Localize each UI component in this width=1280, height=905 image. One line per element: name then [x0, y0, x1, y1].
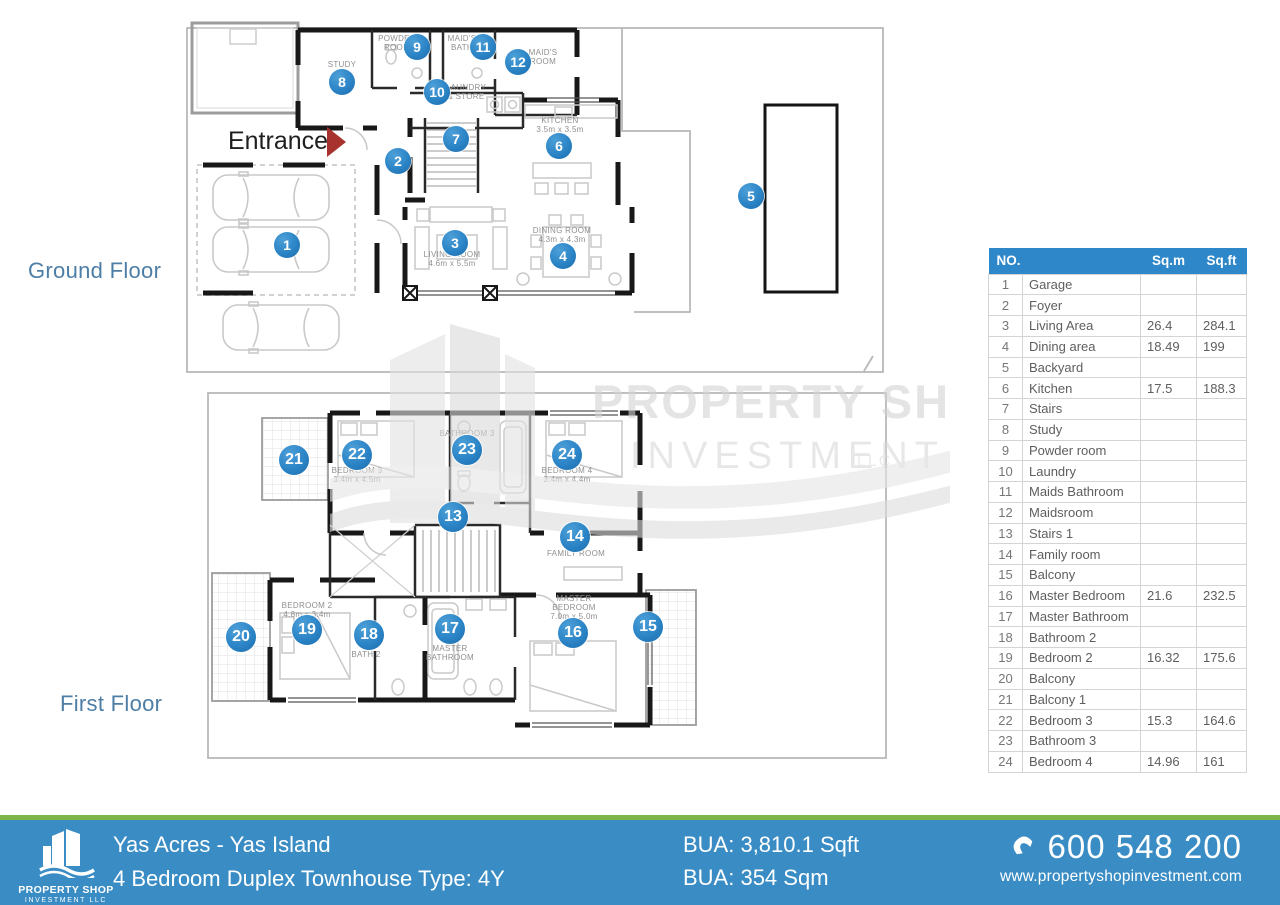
table-row: 9Powder room: [989, 440, 1247, 461]
table-row: 24Bedroom 414.96161: [989, 751, 1247, 772]
header-sqft: Sq.ft: [1197, 248, 1247, 274]
phone-number: 600 548 200: [1047, 828, 1242, 866]
room-marker-2: 2: [385, 148, 411, 174]
room-marker-5: 5: [738, 183, 764, 209]
room-marker-7: 7: [443, 126, 469, 152]
bua-sqm: BUA: 354 Sqm: [683, 865, 859, 891]
room-marker-11: 11: [470, 34, 496, 60]
project-name: Yas Acres - Yas Island: [113, 832, 505, 858]
table-row: 20Balcony: [989, 668, 1247, 689]
room-marker-14: 14: [560, 522, 590, 552]
area-table-body: 1Garage2Foyer3Living Area26.4284.14Dinin…: [989, 274, 1247, 772]
table-row: 13Stairs 1: [989, 523, 1247, 544]
room-marker-1: 1: [274, 232, 300, 258]
company-logo-icon: [36, 826, 96, 878]
room-marker-6: 6: [546, 133, 572, 159]
room-marker-12: 12: [505, 49, 531, 75]
table-row: 22Bedroom 315.3164.6: [989, 710, 1247, 731]
table-row: 15Balcony: [989, 565, 1247, 586]
table-row: 17Master Bathroom: [989, 606, 1247, 627]
table-row: 18Bathroom 2: [989, 627, 1247, 648]
flyer-canvas: Ground Floor First Floor: [0, 0, 1280, 905]
area-table: NO. Sq.m Sq.ft 1Garage2Foyer3Living Area…: [988, 248, 1246, 773]
table-row: 16Master Bedroom21.6232.5: [989, 585, 1247, 606]
header-sqm: Sq.m: [1141, 248, 1197, 274]
room-marker-18: 18: [354, 620, 384, 650]
room-marker-24: 24: [552, 440, 582, 470]
table-header-row: NO. Sq.m Sq.ft: [989, 248, 1247, 274]
contact-info: 600 548 200 www.propertyshopinvestment.c…: [1000, 828, 1242, 886]
room-marker-4: 4: [550, 243, 576, 269]
table-row: 4Dining area18.49199: [989, 336, 1247, 357]
phone-icon: [1011, 834, 1037, 860]
company-logo-subtitle: INVESTMENT LLC: [18, 897, 114, 904]
room-marker-22: 22: [342, 440, 372, 470]
room-marker-9: 9: [404, 34, 430, 60]
room-marker-10: 10: [424, 79, 450, 105]
room-marker-19: 19: [292, 615, 322, 645]
bua-sqft: BUA: 3,810.1 Sqft: [683, 832, 859, 858]
room-marker-8: 8: [329, 69, 355, 95]
table-row: 21Balcony 1: [989, 689, 1247, 710]
room-marker-23: 23: [452, 435, 482, 465]
room-marker-20: 20: [226, 622, 256, 652]
room-marker-13: 13: [438, 502, 468, 532]
room-marker-16: 16: [558, 618, 588, 648]
room-marker-21: 21: [279, 445, 309, 475]
website-url: www.propertyshopinvestment.com: [1000, 868, 1242, 886]
table-row: 5Backyard: [989, 357, 1247, 378]
table-row: 6Kitchen17.5188.3: [989, 378, 1247, 399]
table-row: 8Study: [989, 419, 1247, 440]
table-row: 19Bedroom 216.32175.6: [989, 648, 1247, 669]
bua-info: BUA: 3,810.1 Sqft BUA: 354 Sqm: [683, 832, 859, 898]
header-no: NO.: [989, 248, 1141, 274]
room-marker-15: 15: [633, 612, 663, 642]
company-logo: PROPERTY SHOP INVESTMENT LLC: [18, 826, 114, 904]
table-row: 10Laundry: [989, 461, 1247, 482]
room-marker-17: 17: [435, 614, 465, 644]
project-info: Yas Acres - Yas Island 4 Bedroom Duplex …: [113, 832, 505, 892]
table-row: 11Maids Bathroom: [989, 482, 1247, 503]
table-row: 3Living Area26.4284.1: [989, 316, 1247, 337]
company-logo-title: PROPERTY SHOP: [18, 884, 114, 896]
table-row: 23Bathroom 3: [989, 731, 1247, 752]
table-row: 14Family room: [989, 544, 1247, 565]
unit-type: 4 Bedroom Duplex Townhouse Type: 4Y: [113, 866, 505, 892]
table-row: 7Stairs: [989, 399, 1247, 420]
table-row: 1Garage: [989, 274, 1247, 295]
room-marker-3: 3: [442, 230, 468, 256]
footer-bar: PROPERTY SHOP INVESTMENT LLC Yas Acres -…: [0, 820, 1280, 905]
table-row: 12Maidsroom: [989, 502, 1247, 523]
table-row: 2Foyer: [989, 295, 1247, 316]
